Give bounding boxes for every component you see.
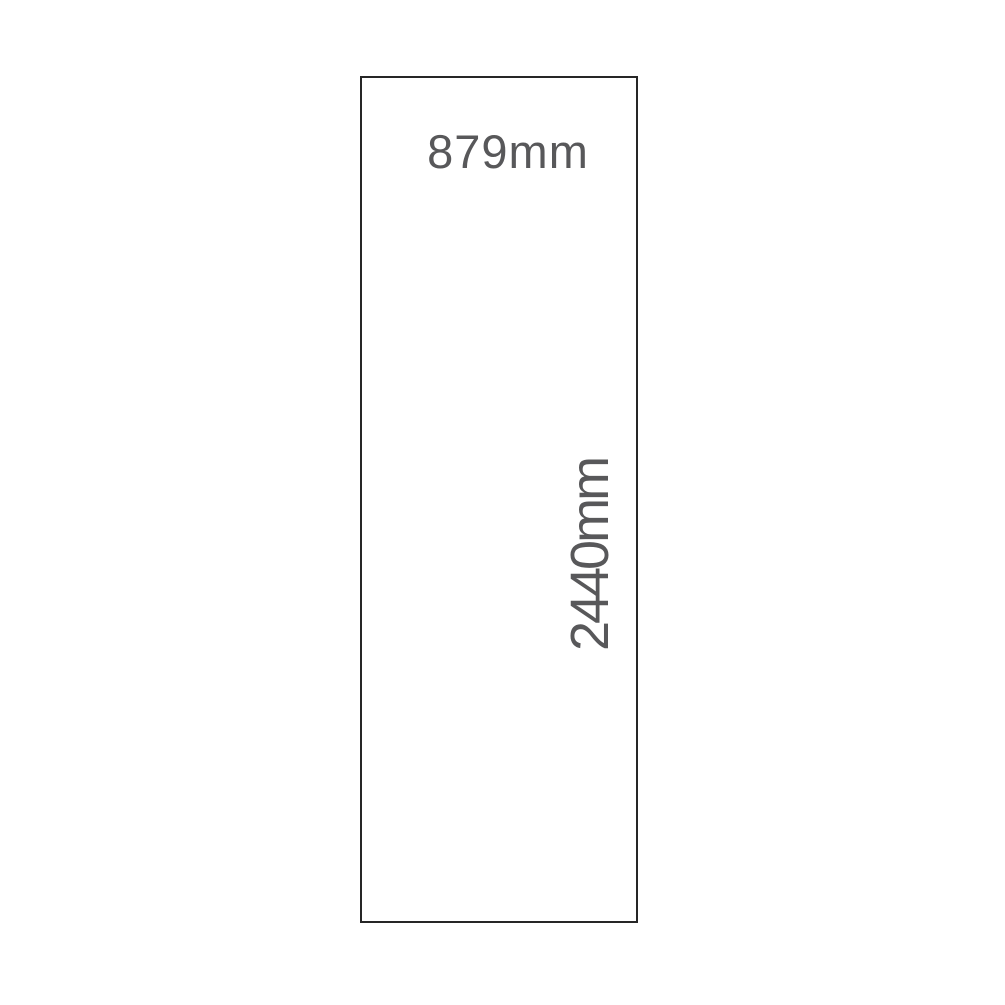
width-dimension-label: 879mm <box>427 128 589 175</box>
diagram-canvas: 879mm 2440mm <box>0 0 1005 1005</box>
height-dimension-label: 2440mm <box>563 459 617 651</box>
